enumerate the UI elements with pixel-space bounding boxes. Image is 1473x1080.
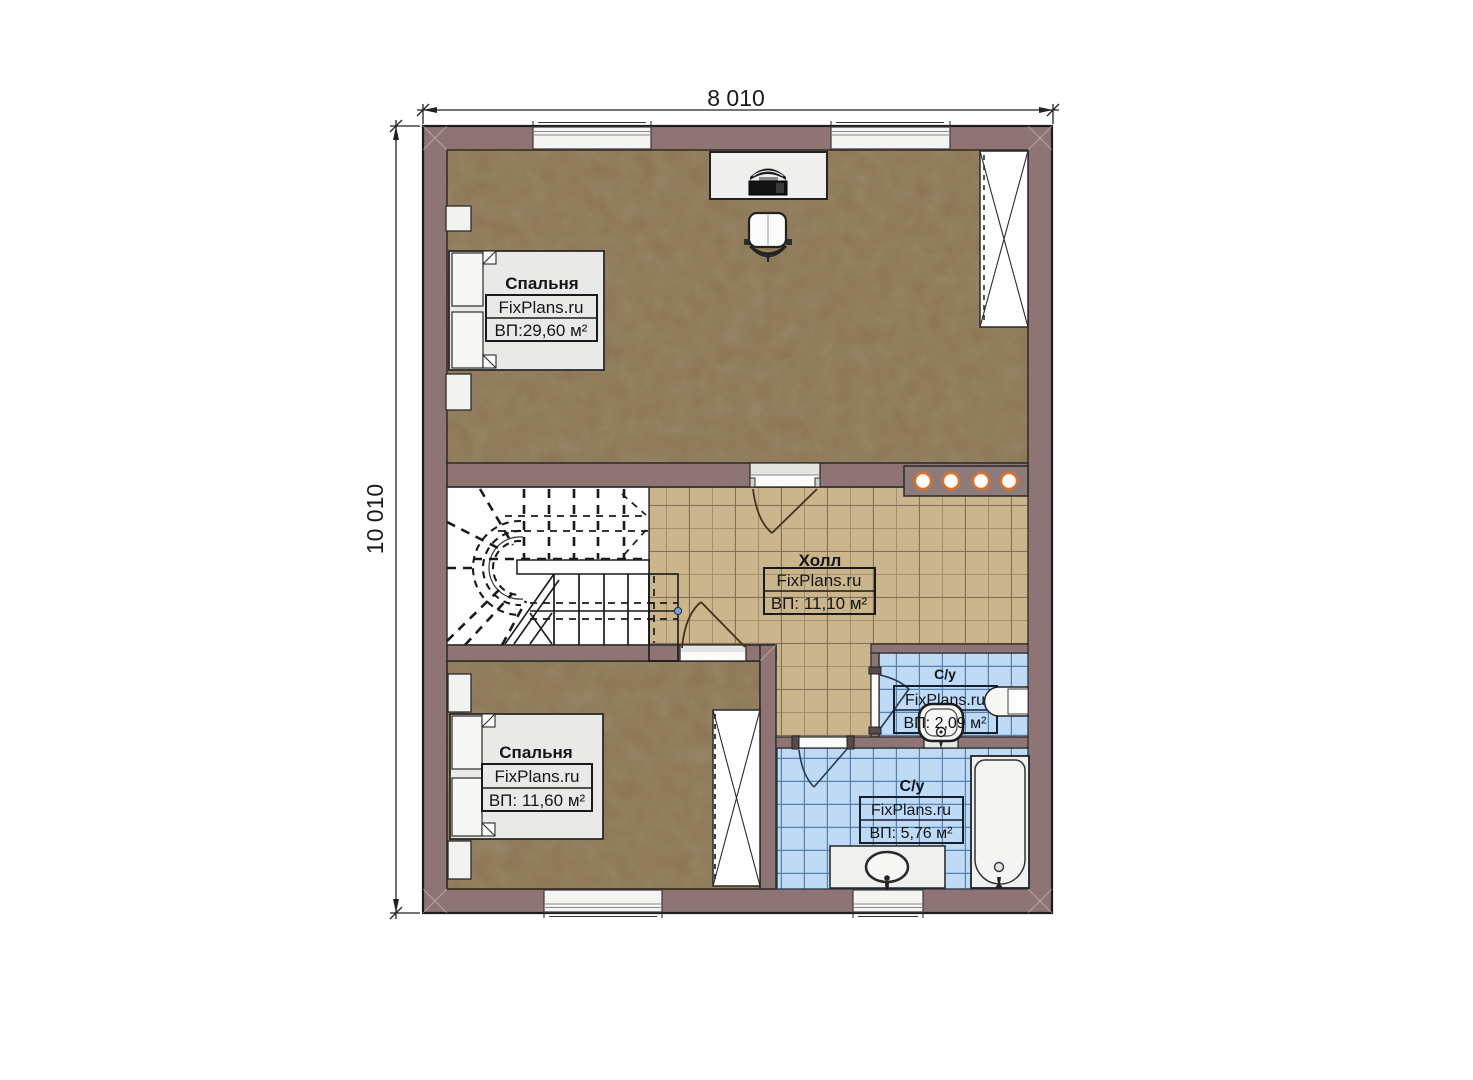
svg-text:FixPlans.ru: FixPlans.ru (776, 571, 861, 590)
svg-text:Спальня: Спальня (499, 743, 572, 762)
svg-text:10 010: 10 010 (362, 484, 388, 554)
svg-text:С/у: С/у (934, 666, 956, 682)
svg-text:ВП: 11,10 м²: ВП: 11,10 м² (771, 594, 868, 613)
svg-text:С/у: С/у (900, 778, 925, 795)
svg-text:ВП: 2,09 м²: ВП: 2,09 м² (904, 715, 988, 732)
svg-text:FixPlans.ru: FixPlans.ru (498, 298, 583, 317)
svg-text:ВП: 5,76 м²: ВП: 5,76 м² (870, 825, 954, 842)
svg-text:Спальня: Спальня (505, 274, 578, 293)
svg-text:8 010: 8 010 (707, 85, 765, 111)
svg-text:FixPlans.ru: FixPlans.ru (494, 767, 579, 786)
svg-text:ВП:29,60 м²: ВП:29,60 м² (495, 321, 588, 340)
svg-text:ВП: 11,60 м²: ВП: 11,60 м² (489, 791, 586, 810)
svg-text:FixPlans.ru: FixPlans.ru (871, 802, 951, 819)
svg-text:FixPlans.ru: FixPlans.ru (905, 692, 985, 709)
